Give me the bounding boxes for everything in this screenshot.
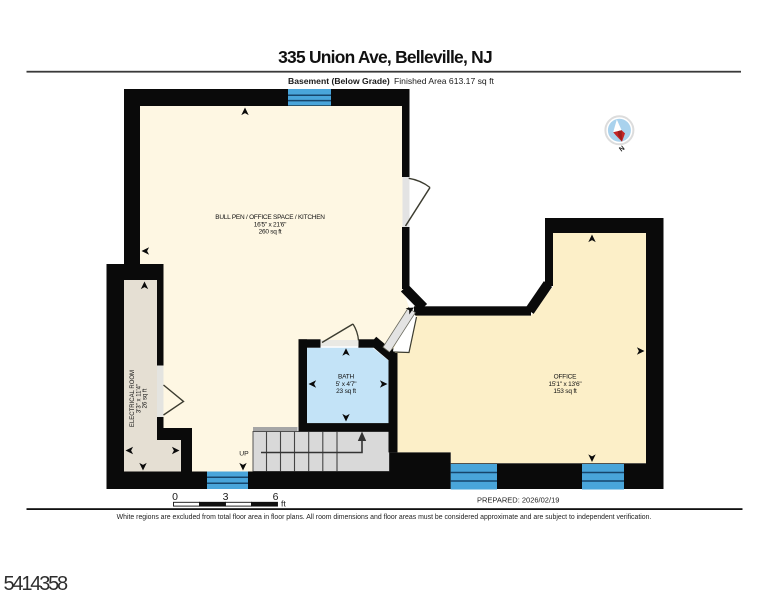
svg-text:PREPARED: 2026/02/19: PREPARED: 2026/02/19 xyxy=(477,495,559,504)
svg-text:5414358: 5414358 xyxy=(4,573,69,594)
svg-text:26 sq ft: 26 sq ft xyxy=(143,388,149,408)
svg-text:UP: UP xyxy=(239,451,249,458)
svg-text:White regions are excluded fro: White regions are excluded from total fl… xyxy=(117,514,652,521)
svg-text:23 sq ft: 23 sq ft xyxy=(336,388,356,395)
svg-text:5' x 4'7": 5' x 4'7" xyxy=(336,381,358,388)
svg-text:0: 0 xyxy=(172,491,178,503)
svg-text:OFFICE: OFFICE xyxy=(554,374,577,381)
svg-text:Finished Area 613.17 sq ft: Finished Area 613.17 sq ft xyxy=(394,76,494,86)
svg-text:153 sq ft: 153 sq ft xyxy=(553,388,577,395)
svg-text:BULL PEN / OFFICE SPACE / KITC: BULL PEN / OFFICE SPACE / KITCHEN xyxy=(215,214,325,221)
svg-text:Basement (Below Grade): Basement (Below Grade) xyxy=(288,76,390,86)
svg-text:16'5" x 21'6": 16'5" x 21'6" xyxy=(254,221,287,228)
svg-text:6: 6 xyxy=(273,491,279,503)
svg-text:335 Union Ave, Belleville, NJ: 335 Union Ave, Belleville, NJ xyxy=(278,47,492,67)
svg-text:3'3" x 11'4": 3'3" x 11'4" xyxy=(136,384,142,413)
svg-text:15'1" x 13'6": 15'1" x 13'6" xyxy=(548,381,582,388)
svg-text:3: 3 xyxy=(223,491,229,503)
svg-text:260 sq ft: 260 sq ft xyxy=(259,229,282,236)
svg-text:BATH: BATH xyxy=(338,374,355,381)
svg-text:ELECTRICAL ROOM: ELECTRICAL ROOM xyxy=(130,370,136,427)
svg-text:ft: ft xyxy=(281,499,286,509)
